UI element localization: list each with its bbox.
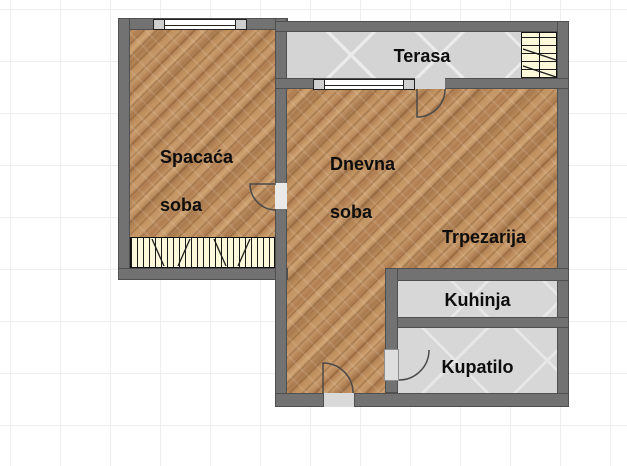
door-bathroom-leaf: [384, 349, 399, 381]
room-label-dining: Trpezarija: [442, 225, 526, 249]
wall-kitchen-top: [385, 268, 569, 281]
window-living: [313, 79, 415, 90]
wall-kitchen-bath-divider: [385, 317, 569, 328]
door-terrace-opening: [415, 78, 445, 89]
room-label-bathroom: Kupatilo: [398, 355, 557, 379]
door-bedroom-opening: [275, 183, 287, 209]
wall-bedroom-bottom: [118, 268, 288, 280]
room-label-kitchen: Kuhinja: [398, 288, 557, 312]
wardrobe-symbol: [130, 237, 275, 268]
room-label-terrace: Terasa: [287, 44, 557, 68]
room-label-bedroom: Spacaća soba: [160, 121, 233, 217]
room-label-bedroom-line2: soba: [160, 195, 202, 215]
window-jamb-icon: [235, 20, 246, 29]
room-label-living: Dnevna soba: [330, 128, 395, 224]
window-jamb-icon: [403, 80, 414, 89]
wall-center-vertical: [275, 18, 287, 407]
wall-bottom-outer: [275, 393, 569, 407]
room-label-bedroom-line1: Spacaća: [160, 147, 233, 167]
window-glass-line: [324, 85, 404, 86]
window-bedroom: [153, 19, 247, 30]
room-label-living-line1: Dnevna: [330, 154, 395, 174]
door-entry-opening: [323, 393, 355, 407]
floor-plan: Spacaća soba Dnevna soba Terasa Trpezari…: [0, 0, 627, 466]
room-label-living-line2: soba: [330, 202, 372, 222]
wall-bedroom-left: [118, 18, 130, 280]
wall-terrace-top: [275, 21, 569, 32]
window-glass-line: [164, 25, 236, 26]
